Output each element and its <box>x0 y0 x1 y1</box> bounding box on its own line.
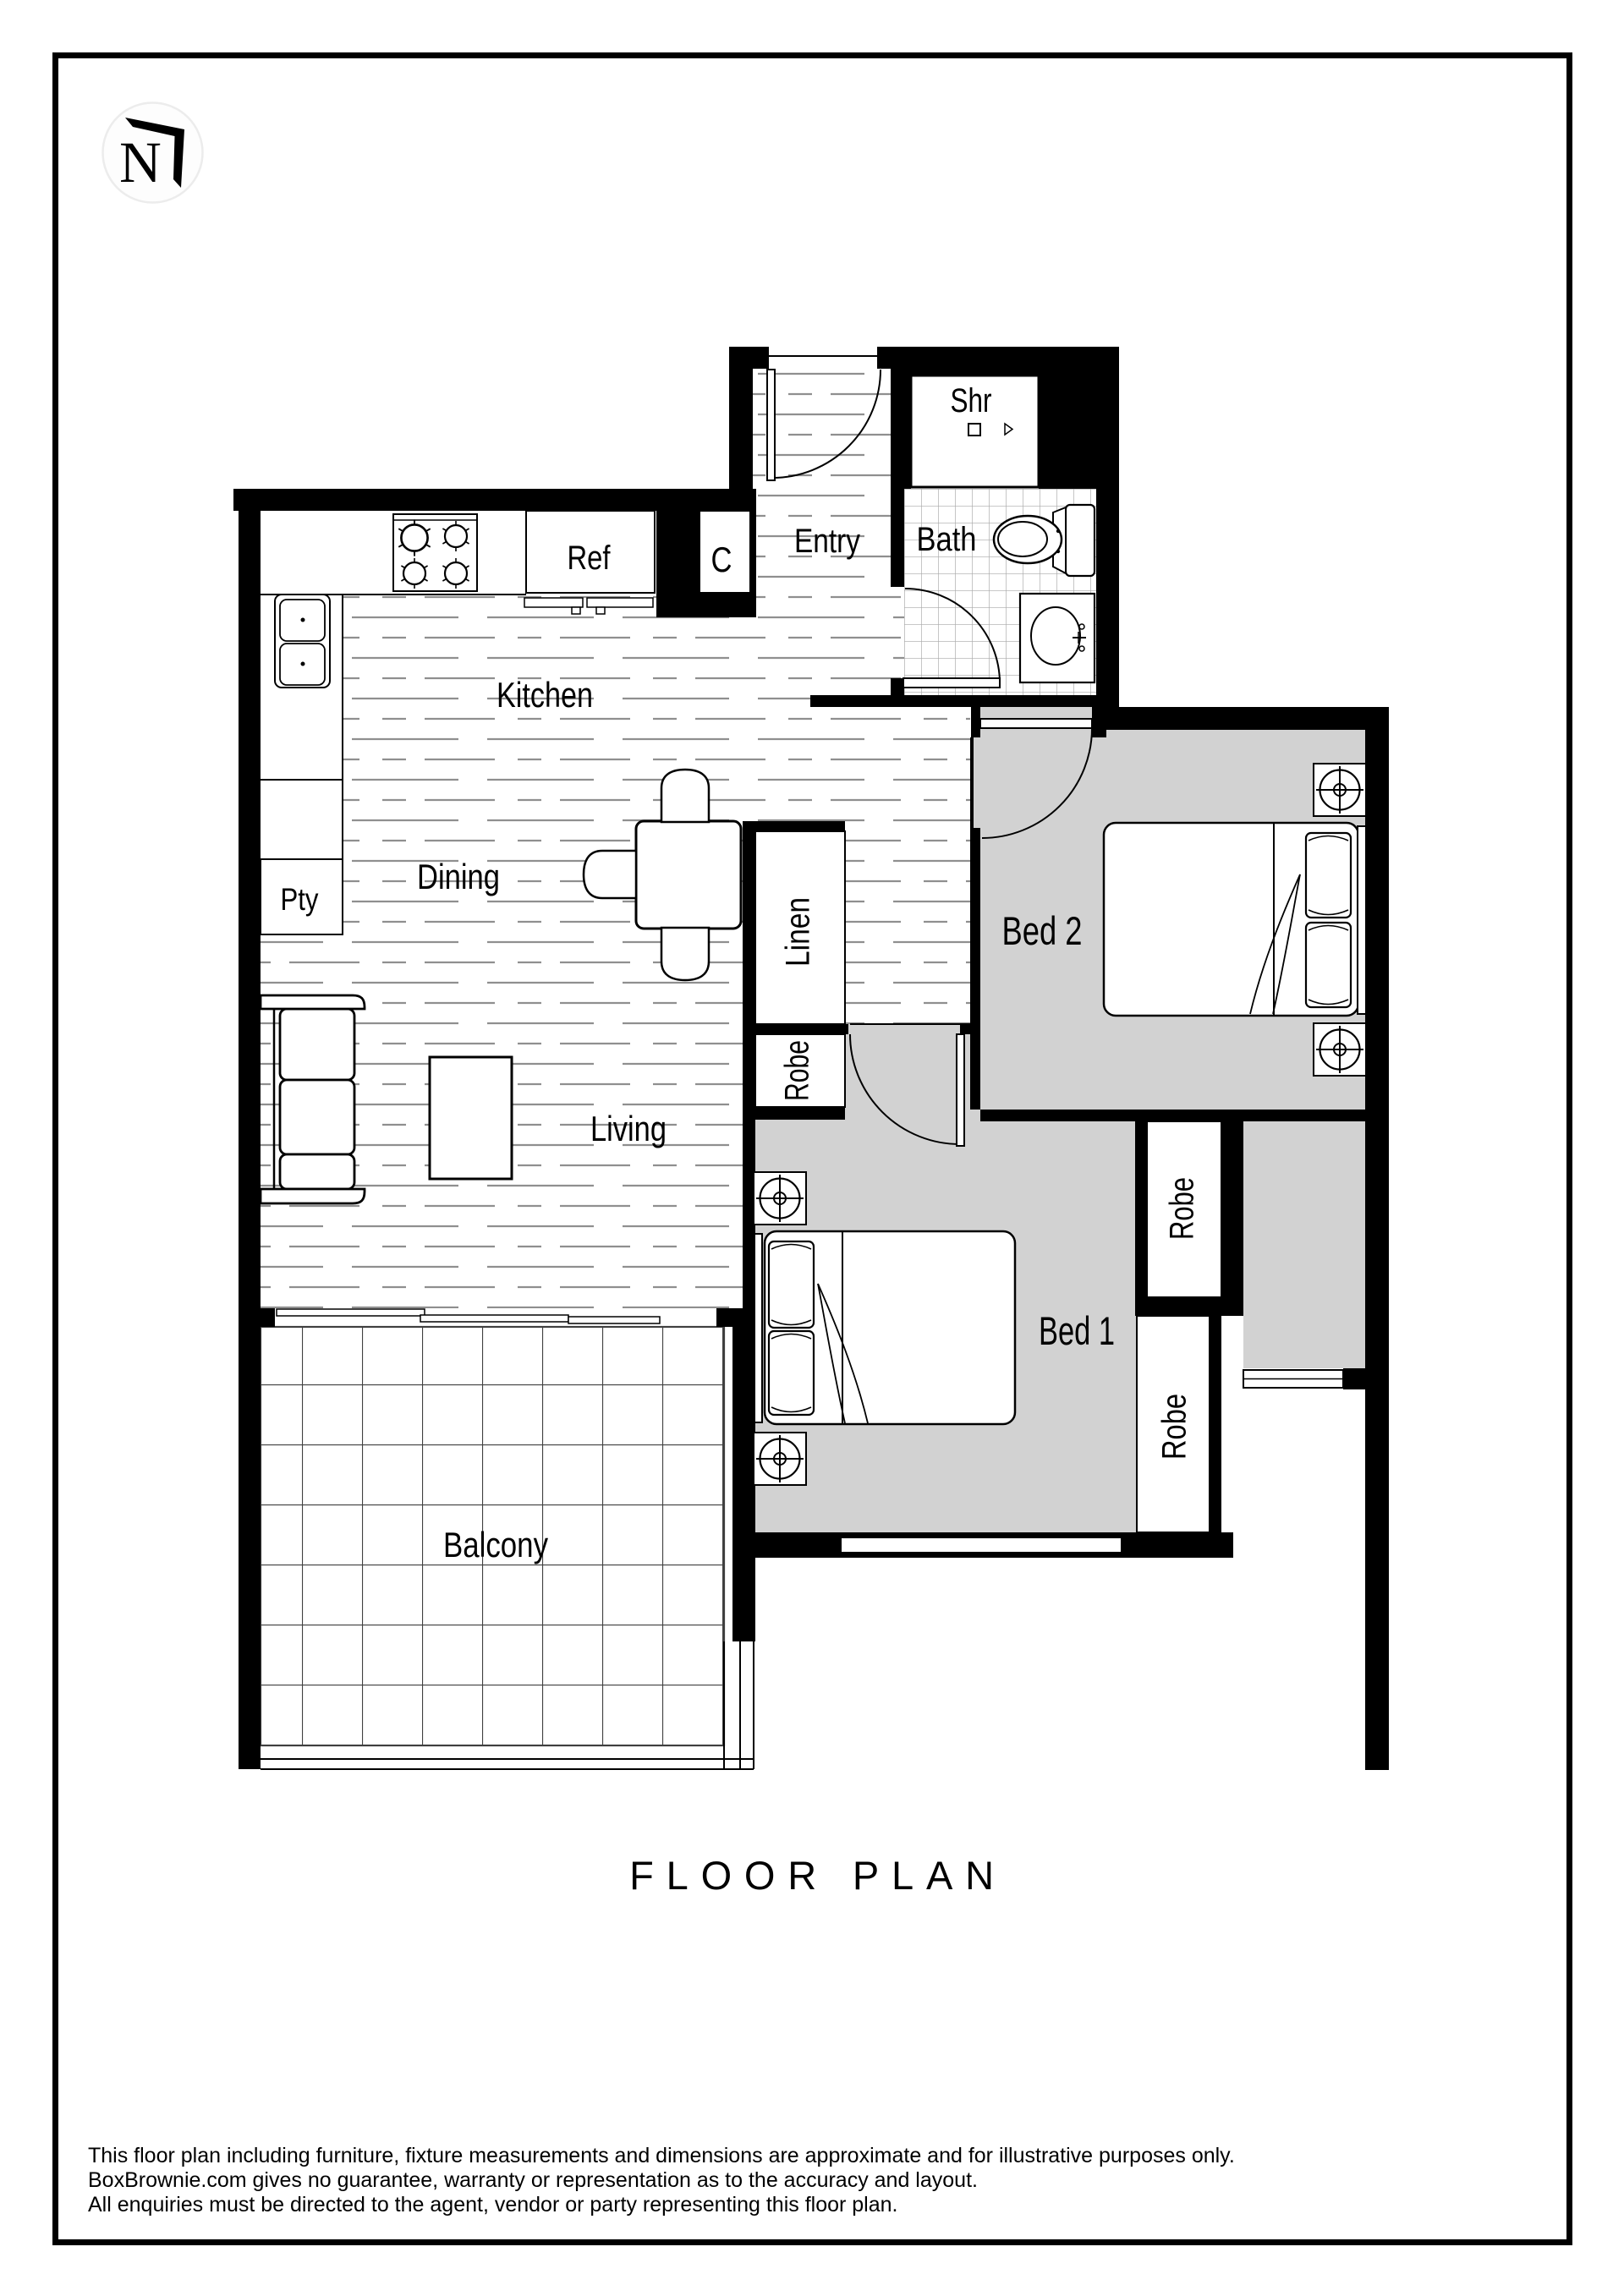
svg-text:Bed 1: Bed 1 <box>1039 1308 1115 1353</box>
svg-text:Ref: Ref <box>568 540 612 577</box>
svg-text:Linen: Linen <box>780 897 817 967</box>
svg-text:Dining: Dining <box>417 857 500 896</box>
svg-text:Robe: Robe <box>1164 1177 1201 1240</box>
svg-text:Robe: Robe <box>779 1040 816 1101</box>
svg-text:Entry: Entry <box>794 523 860 560</box>
svg-text:BoxBrownie.com gives no guaran: BoxBrownie.com gives no guarantee, warra… <box>88 2168 978 2192</box>
svg-text:This floor plan including furn: This floor plan including furniture, fix… <box>88 2144 1235 2167</box>
svg-text:Robe: Robe <box>1156 1394 1193 1460</box>
svg-text:All enquiries must be directed: All enquiries must be directed to the ag… <box>88 2193 897 2217</box>
svg-text:Bath: Bath <box>917 521 977 558</box>
svg-text:Shr: Shr <box>951 382 992 419</box>
svg-text:Balcony: Balcony <box>443 1525 548 1564</box>
svg-text:Pty: Pty <box>281 882 319 917</box>
svg-text:Living: Living <box>590 1109 667 1148</box>
svg-text:N: N <box>119 130 162 195</box>
svg-text:FLOOR PLAN: FLOOR PLAN <box>629 1853 1007 1898</box>
svg-text:Bed 2: Bed 2 <box>1002 908 1083 953</box>
svg-text:C: C <box>711 540 732 579</box>
svg-text:Kitchen: Kitchen <box>497 675 593 715</box>
